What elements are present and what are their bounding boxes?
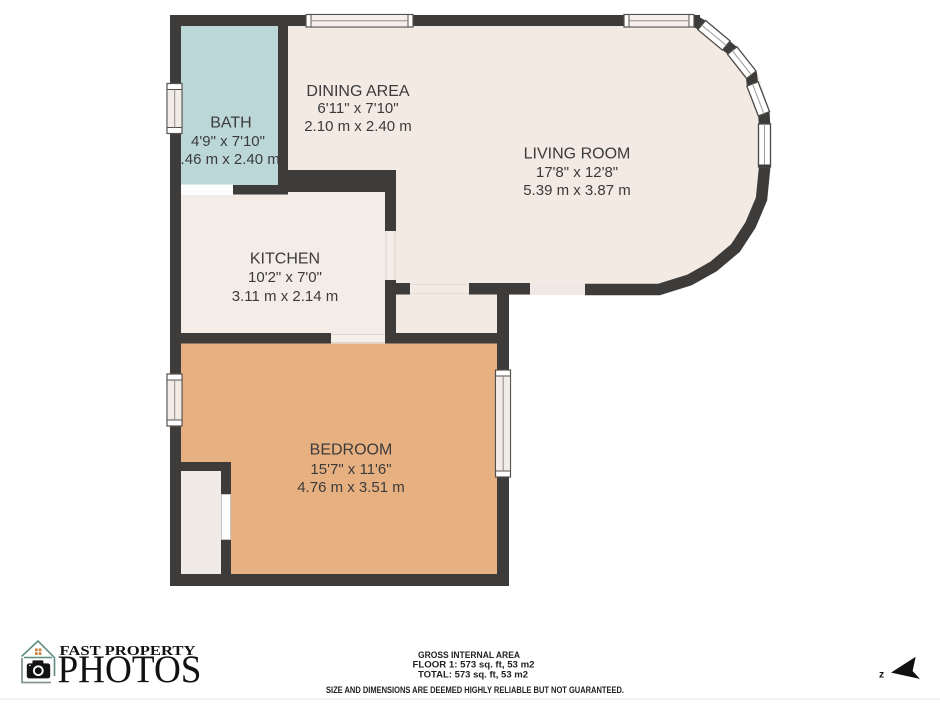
- svg-text:3.11 m x 2.14 m: 3.11 m x 2.14 m: [232, 288, 338, 305]
- svg-text:10'2" x 7'0": 10'2" x 7'0": [248, 269, 322, 286]
- svg-text:15'7" x 11'6": 15'7" x 11'6": [310, 461, 391, 478]
- svg-text:17'8" x 12'8": 17'8" x 12'8": [536, 164, 618, 181]
- svg-text:4.76 m x 3.51 m: 4.76 m x 3.51 m: [297, 479, 405, 496]
- svg-text:KITCHEN: KITCHEN: [250, 251, 320, 268]
- svg-text:SIZE AND DIMENSIONS ARE DEEMED: SIZE AND DIMENSIONS ARE DEEMED HIGHLY RE…: [326, 685, 624, 696]
- svg-text:2.10 m x 2.40 m: 2.10 m x 2.40 m: [304, 118, 412, 135]
- svg-text:DINING AREA: DINING AREA: [306, 83, 409, 100]
- svg-text:PHOTOS: PHOTOS: [58, 648, 202, 691]
- svg-text:4'9" x 7'10": 4'9" x 7'10": [191, 133, 265, 150]
- svg-text:TOTAL: 573 sq. ft, 53 m2: TOTAL: 573 sq. ft, 53 m2: [418, 670, 528, 681]
- svg-text:6'11" x 7'10": 6'11" x 7'10": [317, 100, 398, 117]
- svg-text:z: z: [879, 669, 884, 681]
- svg-text:LIVING ROOM: LIVING ROOM: [524, 146, 631, 163]
- svg-text:BEDROOM: BEDROOM: [310, 442, 393, 459]
- svg-text:5.39 m x 3.87 m: 5.39 m x 3.87 m: [523, 182, 631, 199]
- svg-text:1.46 m x 2.40 m: 1.46 m x 2.40 m: [172, 151, 280, 168]
- svg-text:BATH: BATH: [210, 115, 251, 132]
